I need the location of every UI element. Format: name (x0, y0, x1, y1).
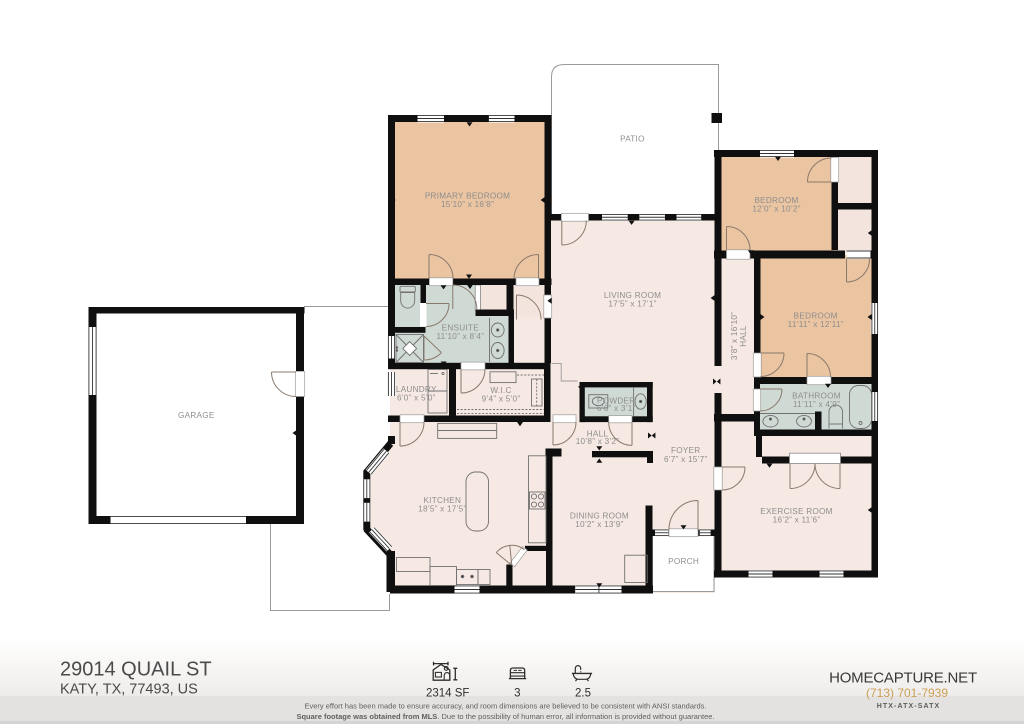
svg-text:9’4” x 5’0”: 9’4” x 5’0” (482, 395, 521, 404)
svg-text:HOMECAPTURE.NET: HOMECAPTURE.NET (829, 670, 977, 687)
svg-text:6’0” x 5’0”: 6’0” x 5’0” (397, 394, 436, 403)
svg-text:HTX-ATX-SATX: HTX-ATX-SATX (877, 703, 941, 710)
svg-text:2.5: 2.5 (575, 688, 591, 700)
svg-text:(713) 701-7939: (713) 701-7939 (866, 686, 948, 700)
svg-text:3’8” x 16’10”: 3’8” x 16’10” (730, 312, 739, 360)
svg-text:Square footage was obtained fr: Square footage was obtained from MLS. Du… (296, 712, 714, 721)
svg-text:HALL: HALL (739, 325, 748, 347)
svg-text:KATY, TX, 77493, US: KATY, TX, 77493, US (60, 682, 198, 698)
svg-text:18’5” x 17’5”: 18’5” x 17’5” (418, 505, 466, 514)
svg-text:15’10” x 16’8”: 15’10” x 16’8” (441, 200, 494, 209)
svg-text:GARAGE: GARAGE (178, 411, 215, 420)
svg-text:10’2” x 13’9”: 10’2” x 13’9” (575, 520, 623, 529)
svg-text:PORCH: PORCH (668, 557, 699, 566)
svg-text:Every effort has been made to: Every effort has been made to ensure acc… (304, 702, 706, 711)
svg-text:12’0” x 10’2”: 12’0” x 10’2” (752, 205, 800, 214)
svg-text:11’11” x 12’11”: 11’11” x 12’11” (788, 320, 844, 329)
svg-text:11’10” x 8’4”: 11’10” x 8’4” (436, 332, 484, 341)
svg-text:11’11” x 4’9”: 11’11” x 4’9” (793, 400, 840, 409)
svg-text:PATIO: PATIO (620, 135, 645, 144)
svg-text:3: 3 (514, 688, 520, 700)
svg-text:29014 QUAIL ST: 29014 QUAIL ST (60, 659, 212, 681)
svg-text:16’2” x 11’6”: 16’2” x 11’6” (773, 516, 821, 525)
svg-text:6’7” x 15’7”: 6’7” x 15’7” (664, 455, 708, 464)
svg-text:FOYER: FOYER (671, 446, 700, 455)
svg-text:2314 SF: 2314 SF (426, 688, 469, 700)
svg-text:10’8” x 3’2”: 10’8” x 3’2” (576, 437, 620, 446)
svg-text:17’5” x 17’1”: 17’5” x 17’1” (608, 300, 656, 309)
svg-text:6’6” x 3’1”: 6’6” x 3’1” (597, 404, 636, 413)
